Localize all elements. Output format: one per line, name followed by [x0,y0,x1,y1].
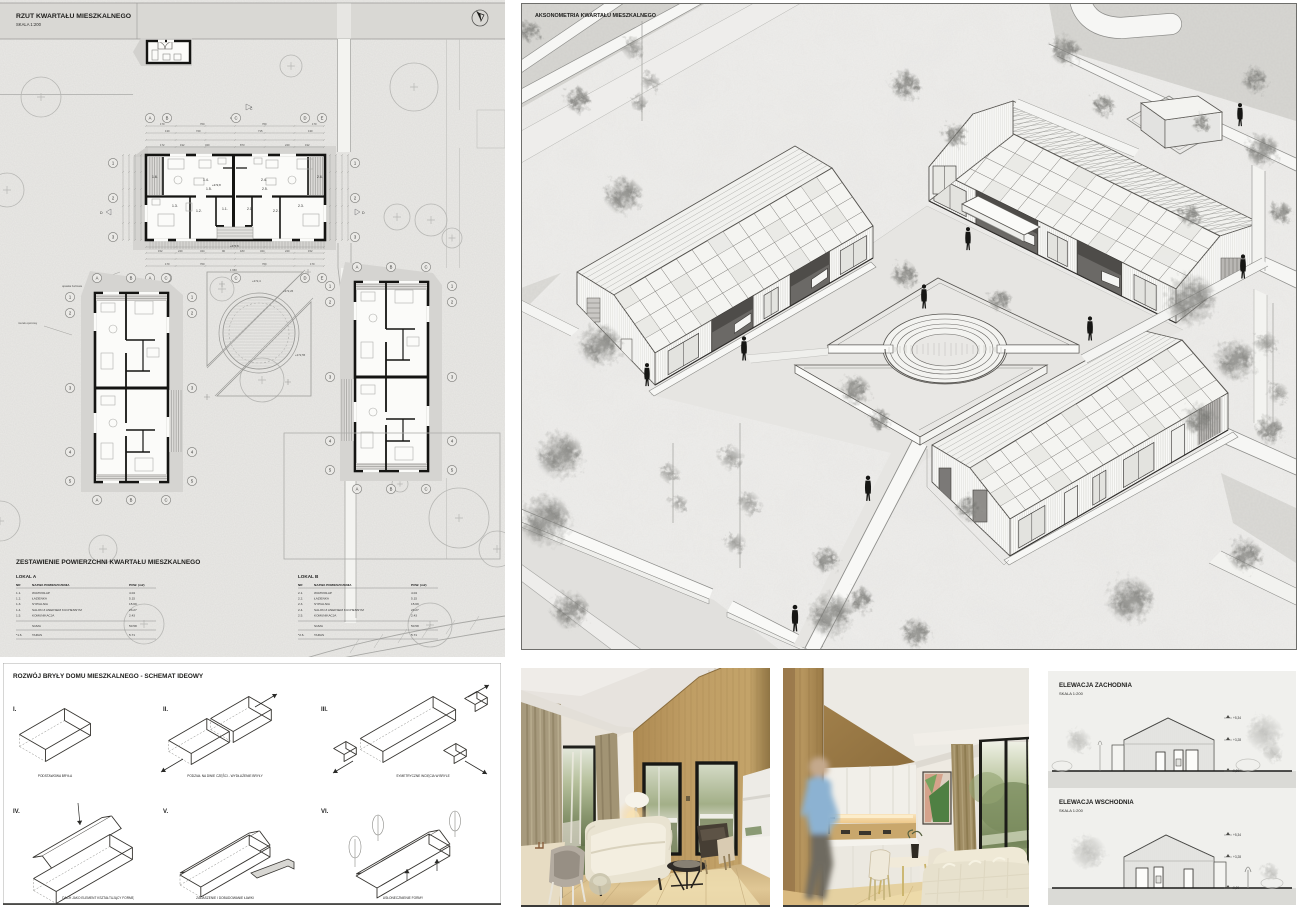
svg-text:2.5.: 2.5. [298,613,303,617]
svg-text:+3,28: +3,28 [1233,738,1241,742]
svg-text:344: 344 [200,249,205,253]
svg-text:C: C [164,498,167,503]
svg-text:1.2.: 1.2. [196,209,202,213]
svg-text:SKALA 1:200: SKALA 1:200 [16,22,42,27]
svg-text:B: B [130,498,133,503]
svg-text:5.71: 5.71 [129,633,135,637]
svg-text:WIATROŁAP: WIATROŁAP [314,591,332,595]
svg-text:PODSTAWOWA BRYŁA: PODSTAWOWA BRYŁA [38,774,73,778]
svg-text:2.4.: 2.4. [298,608,303,612]
svg-text:ŁAZIENKA: ŁAZIENKA [314,597,330,601]
svg-text:TARAS: TARAS [32,633,42,637]
svg-text:50.58: 50.58 [129,624,137,628]
svg-text:POW. (m2): POW. (m2) [411,583,426,587]
svg-text:130: 130 [308,129,313,133]
svg-text:+5,34: +5,34 [1233,716,1241,720]
svg-text:4.04: 4.04 [411,591,417,595]
svg-text:ROZWÓJ BRYŁY DOMU MIESZKALNEGO: ROZWÓJ BRYŁY DOMU MIESZKALNEGO - SCHEMAT… [13,671,204,680]
svg-text:715: 715 [258,129,263,133]
svg-text:SALON Z ANEKSEM KUCHENNYM: SALON Z ANEKSEM KUCHENNYM [314,608,364,612]
svg-text:SUMA: SUMA [32,624,42,628]
svg-text:23.27: 23.27 [411,608,419,612]
svg-text:ŁAZIENKA: ŁAZIENKA [32,597,48,601]
svg-text:C: C [234,116,237,121]
svg-text:50.58: 50.58 [411,624,419,628]
svg-text:DACH JAKO ELEMENT KSZTAŁTUJĄCY: DACH JAKO ELEMENT KSZTAŁTUJĄCY FORMĘ [62,896,134,900]
svg-text:USŁONECZNIENIE FORMY: USŁONECZNIENIE FORMY [383,896,424,900]
svg-text:RZUT KWARTAŁU MIESZKALNEGO: RZUT KWARTAŁU MIESZKALNEGO [16,13,131,20]
svg-text:1.3.: 1.3. [16,602,21,606]
svg-text:760: 760 [262,122,267,126]
svg-text:murek oporowy: murek oporowy [18,321,38,325]
svg-text:+272,26: +272,26 [283,289,294,293]
svg-text:ELEWACJA WSCHODNIA: ELEWACJA WSCHODNIA [1059,799,1134,806]
svg-text:344: 344 [260,249,265,253]
svg-text:SUMA: SUMA [314,624,324,628]
svg-text:D: D [100,211,103,215]
svg-text:873: 873 [240,143,245,147]
svg-text:2.4.: 2.4. [261,178,267,182]
svg-text:183: 183 [240,249,245,253]
svg-text:+3,28: +3,28 [1233,855,1241,859]
svg-text:B: B [390,487,393,492]
svg-text:+272,55: +272,55 [295,353,306,357]
svg-text:AKSONOMETRIA KWARTAŁU MIESZKAL: AKSONOMETRIA KWARTAŁU MIESZKALNEGO [535,13,656,19]
svg-text:5.15: 5.15 [129,597,135,601]
svg-text:192: 192 [180,143,185,147]
svg-text:NAZWA POMIESZCZENIA: NAZWA POMIESZCZENIA [314,583,352,587]
svg-text:VI.: VI. [321,809,329,815]
svg-text:IV.: IV. [13,809,20,815]
svg-text:1.4.: 1.4. [203,178,209,182]
svg-text:B: B [130,276,133,281]
svg-text:5.15: 5.15 [411,597,417,601]
svg-text:2.5.: 2.5. [262,187,268,191]
svg-text:1.4.: 1.4. [16,608,21,612]
svg-text:D: D [303,276,306,281]
svg-text:ELEWACJA ZACHODNIA: ELEWACJA ZACHODNIA [1059,682,1133,689]
svg-text:2.2.: 2.2. [298,597,303,601]
svg-text:2.43: 2.43 [129,613,135,617]
svg-text:E: E [321,116,324,121]
svg-text:720: 720 [196,129,201,133]
svg-text:240: 240 [178,249,183,253]
svg-text:A: A [356,265,359,270]
svg-text:2.3.: 2.3. [298,204,304,208]
svg-text:170: 170 [310,262,315,266]
svg-text:1.1.: 1.1. [16,591,21,595]
svg-text:PODZIAŁ NA DWIE CZĘŚCI - WYDŁU: PODZIAŁ NA DWIE CZĘŚCI - WYDŁUŻENIE BRYŁ… [187,773,263,778]
svg-text:D: D [362,211,365,215]
svg-text:LOKAL B: LOKAL B [298,574,319,579]
svg-text:C: C [424,265,427,270]
svg-text:C: C [234,276,237,281]
svg-text:WIATROŁAP: WIATROŁAP [32,591,50,595]
svg-text:2.1.: 2.1. [247,207,253,211]
svg-text:B: B [166,116,169,121]
svg-text:ZESTAWIENIE POWIERZCHNI KWARTA: ZESTAWIENIE POWIERZCHNI KWARTAŁU MIESZKA… [16,559,200,566]
svg-text:SYPIALNIA: SYPIALNIA [32,602,49,606]
svg-text:1.1.: 1.1. [222,207,228,211]
svg-text:III.: III. [321,707,328,713]
svg-text:1.2.: 1.2. [16,597,21,601]
svg-text:SKALA 1:200: SKALA 1:200 [1059,691,1084,696]
svg-text:760: 760 [200,122,205,126]
svg-text:192: 192 [305,143,310,147]
svg-text:E: E [321,276,324,281]
svg-text:+272,8: +272,8 [212,183,221,187]
svg-text:130: 130 [165,129,170,133]
svg-text:POW. (m2): POW. (m2) [129,583,144,587]
svg-text:172: 172 [160,143,165,147]
svg-text:1.3.: 1.3. [172,204,178,208]
svg-text:5.71: 5.71 [411,633,417,637]
svg-text:*1.6.: *1.6. [16,633,23,637]
svg-text:15.69: 15.69 [129,602,137,606]
svg-text:A: A [96,498,99,503]
svg-text:ZADASZENIE I DOBUDOWANIE ŁAWKI: ZADASZENIE I DOBUDOWANIE ŁAWKI [196,896,254,900]
svg-text:V.: V. [163,809,168,815]
svg-text:KOMUNIKACJA: KOMUNIKACJA [32,613,55,617]
svg-text:A: A [96,276,99,281]
svg-text:1 660: 1 660 [230,268,237,272]
svg-text:90: 90 [222,249,225,253]
svg-text:1.5.: 1.5. [206,187,212,191]
svg-text:2.1.: 2.1. [298,591,303,595]
svg-text:NAZWA POMIESZCZENIA: NAZWA POMIESZCZENIA [32,583,70,587]
svg-text:152: 152 [158,249,163,253]
svg-text:+272,4: +272,4 [252,279,261,283]
svg-text:240: 240 [285,249,290,253]
svg-text:SYPIALNIA: SYPIALNIA [314,602,331,606]
svg-text:+5,34: +5,34 [1233,833,1241,837]
svg-text:A: A [356,487,359,492]
svg-text:*2.6.: *2.6. [298,633,305,637]
svg-text:NR: NR [16,583,21,587]
svg-text:15.69: 15.69 [411,602,419,606]
svg-text:II.: II. [163,707,168,713]
svg-text:760: 760 [200,262,205,266]
svg-text:B: B [390,265,393,270]
svg-text:1.5.: 1.5. [16,613,21,617]
svg-text:I.: I. [13,707,17,713]
svg-text:0,00: 0,00 [1233,769,1239,773]
svg-text:C: C [164,276,167,281]
svg-text:TARAS: TARAS [314,633,324,637]
svg-text:1.6.: 1.6. [152,175,158,179]
svg-text:KOMUNIKACJA: KOMUNIKACJA [314,613,337,617]
svg-text:23.27: 23.27 [129,608,137,612]
svg-text:152: 152 [308,249,313,253]
svg-text:NR: NR [298,583,303,587]
svg-text:opaska żwirowa: opaska żwirowa [62,284,82,288]
svg-text:C: C [424,487,427,492]
svg-text:170: 170 [160,122,165,126]
svg-text:170: 170 [165,262,170,266]
svg-text:170: 170 [312,122,317,126]
svg-text:2.3.: 2.3. [298,602,303,606]
svg-text:340: 340 [205,143,210,147]
svg-text:LOKAL A: LOKAL A [16,574,37,579]
svg-text:2.6.: 2.6. [317,175,323,179]
svg-text:4.04: 4.04 [129,591,135,595]
svg-text:760: 760 [262,262,267,266]
svg-text:SYMETRYCZNE WCIĘCIA W BRYLE: SYMETRYCZNE WCIĘCIA W BRYLE [396,774,450,778]
svg-text:A: A [149,116,152,121]
svg-text:240: 240 [285,143,290,147]
svg-text:2.2.: 2.2. [273,209,279,213]
svg-text:2.43: 2.43 [411,613,417,617]
svg-text:0,00: 0,00 [1233,886,1239,890]
svg-text:SALON Z ANEKSEM KUCHENNYM: SALON Z ANEKSEM KUCHENNYM [32,608,82,612]
svg-text:D: D [303,116,306,121]
svg-text:SKALA 1:200: SKALA 1:200 [1059,808,1084,813]
